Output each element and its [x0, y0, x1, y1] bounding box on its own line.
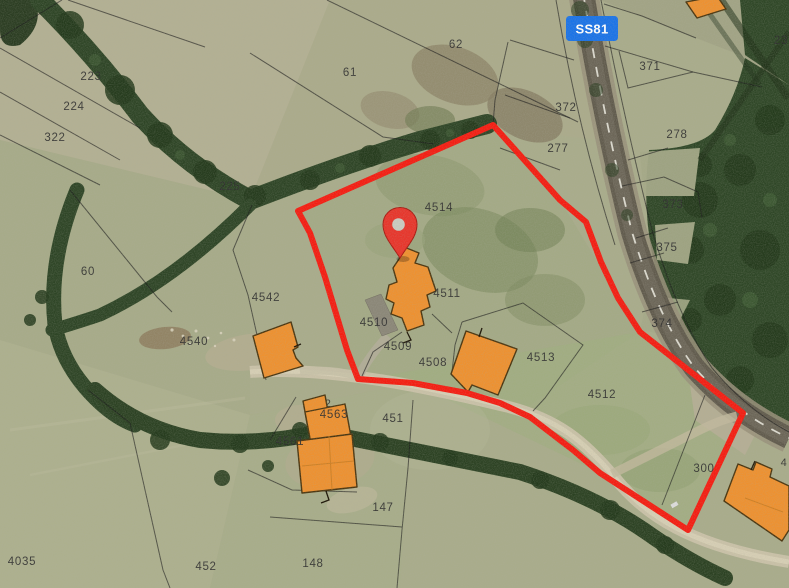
- satellite-grain-overlay: [0, 0, 789, 588]
- map-viewport[interactable]: 4510 4562 4 223 224 322 225 60 61 62 371…: [0, 0, 789, 588]
- map-canvas[interactable]: 4510 4562 4 223 224 322 225 60 61 62 371…: [0, 0, 789, 588]
